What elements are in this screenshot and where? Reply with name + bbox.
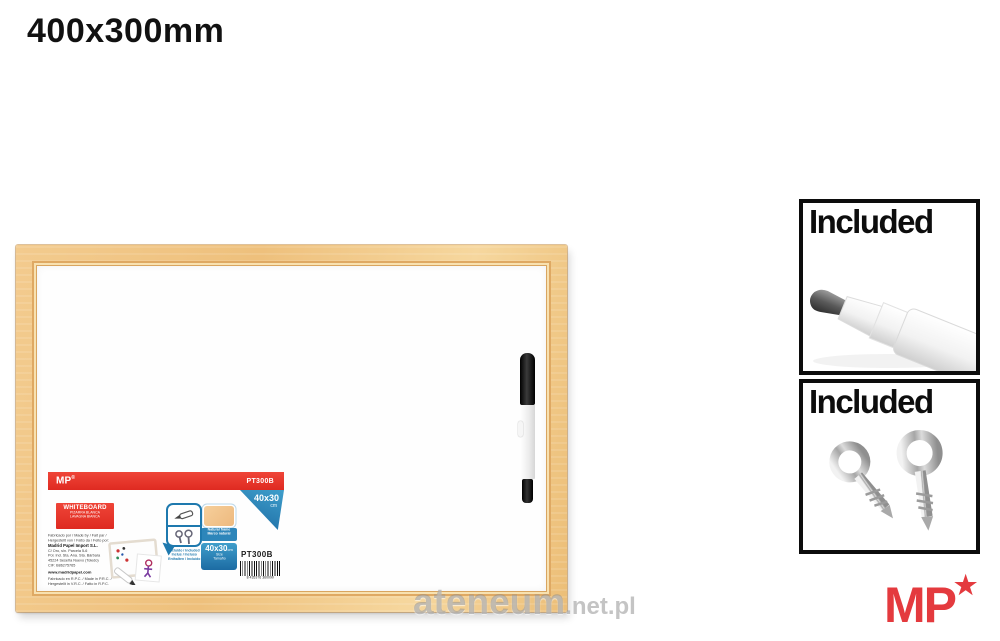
marker-icon — [171, 508, 197, 523]
size-box: 40x30cm Size Tamaño — [201, 543, 237, 570]
origin-line: Hergestellt in V.R.C. / Fatto in R.P.C. — [48, 581, 112, 586]
product-subtitle-es: PIZARRA BLANCA — [70, 511, 100, 515]
product-subtitle-it: LAVAGNA BIANCA — [70, 515, 100, 519]
wood-sample-caption: Natural frame Marco natural — [201, 528, 237, 541]
registered-mark: ® — [71, 475, 75, 481]
marker-photo — [803, 243, 976, 371]
product-name-box: WHITEBOARD PIZARRA BLANCA LAVAGNA BIANCA — [56, 503, 114, 529]
page-title: 400x300mm — [27, 12, 224, 51]
product-code: PT300B — [241, 550, 273, 559]
wood-frame-sample — [204, 506, 234, 526]
kid-drawing-note — [135, 554, 161, 582]
marker-cap — [520, 353, 535, 405]
product-image: 400x300mm MP® PT300B 40x30 cm WHITEBOARD… — [0, 0, 1000, 641]
eye-hook-right — [900, 434, 944, 533]
hooks-photo — [803, 423, 976, 550]
included-label: Included — [803, 383, 976, 419]
barcode-digits: 8 435376 360090 — [236, 576, 284, 584]
included-panel-marker: Included — [799, 199, 980, 375]
marker-body — [520, 405, 535, 479]
star-icon: ★ — [954, 570, 977, 600]
marker-clip — [518, 421, 523, 437]
address-line: CIF: B86275765 — [48, 563, 112, 568]
included-items-bubble — [166, 503, 202, 547]
dry-erase-marker — [520, 353, 535, 505]
label-banner: MP® PT300B — [48, 472, 284, 490]
hooks-icon — [171, 529, 197, 545]
included-label: Included — [803, 203, 976, 239]
included-panel-hooks: Included — [799, 379, 980, 554]
barcode — [240, 561, 280, 576]
marker-tip — [522, 479, 533, 503]
manufacturer-block: Fabricado por / Made by / Fait par / Her… — [48, 533, 112, 639]
label-sku: PT300B — [247, 478, 274, 485]
watermark: ateneum.net.pl — [413, 581, 636, 623]
label-brand: MP® — [56, 475, 75, 486]
brand-logo: MP★ — [884, 572, 977, 630]
eye-hook-left — [828, 440, 904, 530]
